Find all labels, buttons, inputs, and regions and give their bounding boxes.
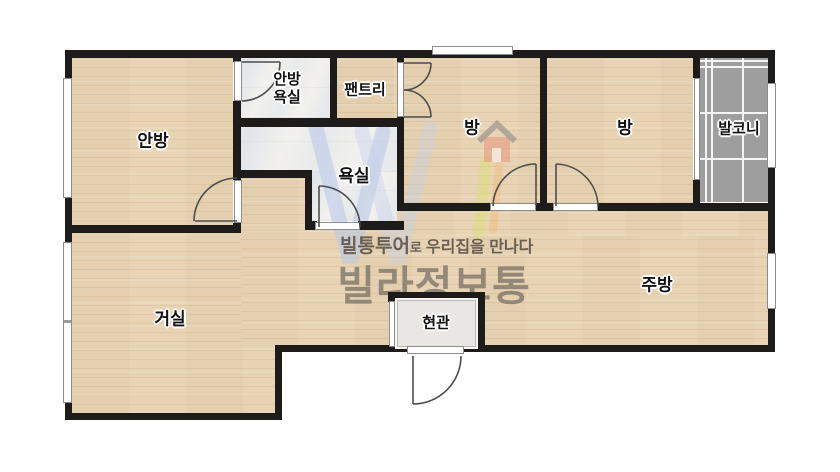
label-bathroom: 욕실 — [338, 167, 369, 186]
door-arcs-layer — [0, 0, 840, 472]
door-bathroom — [319, 186, 360, 227]
label-room-b: 방 — [617, 119, 633, 138]
door-anbang — [194, 178, 237, 221]
door-room-b — [556, 164, 598, 206]
label-kitchen: 주방 — [641, 276, 672, 295]
label-room-a: 방 — [464, 119, 480, 138]
label-balcony: 발코니 — [718, 120, 759, 139]
label-anbang-bath: 안방 욕실 — [273, 71, 301, 107]
door-room-a — [493, 164, 536, 206]
floorplan: 빌통투어로우리집을 만나다 빌라정보통 — [0, 0, 840, 472]
label-anbang: 안방 — [137, 132, 168, 151]
label-living: 거실 — [154, 310, 185, 329]
label-pantry: 팬트리 — [344, 81, 385, 100]
door-entrance — [413, 356, 461, 404]
door-pantry-double — [404, 63, 431, 117]
label-entrance: 현관 — [422, 314, 450, 333]
